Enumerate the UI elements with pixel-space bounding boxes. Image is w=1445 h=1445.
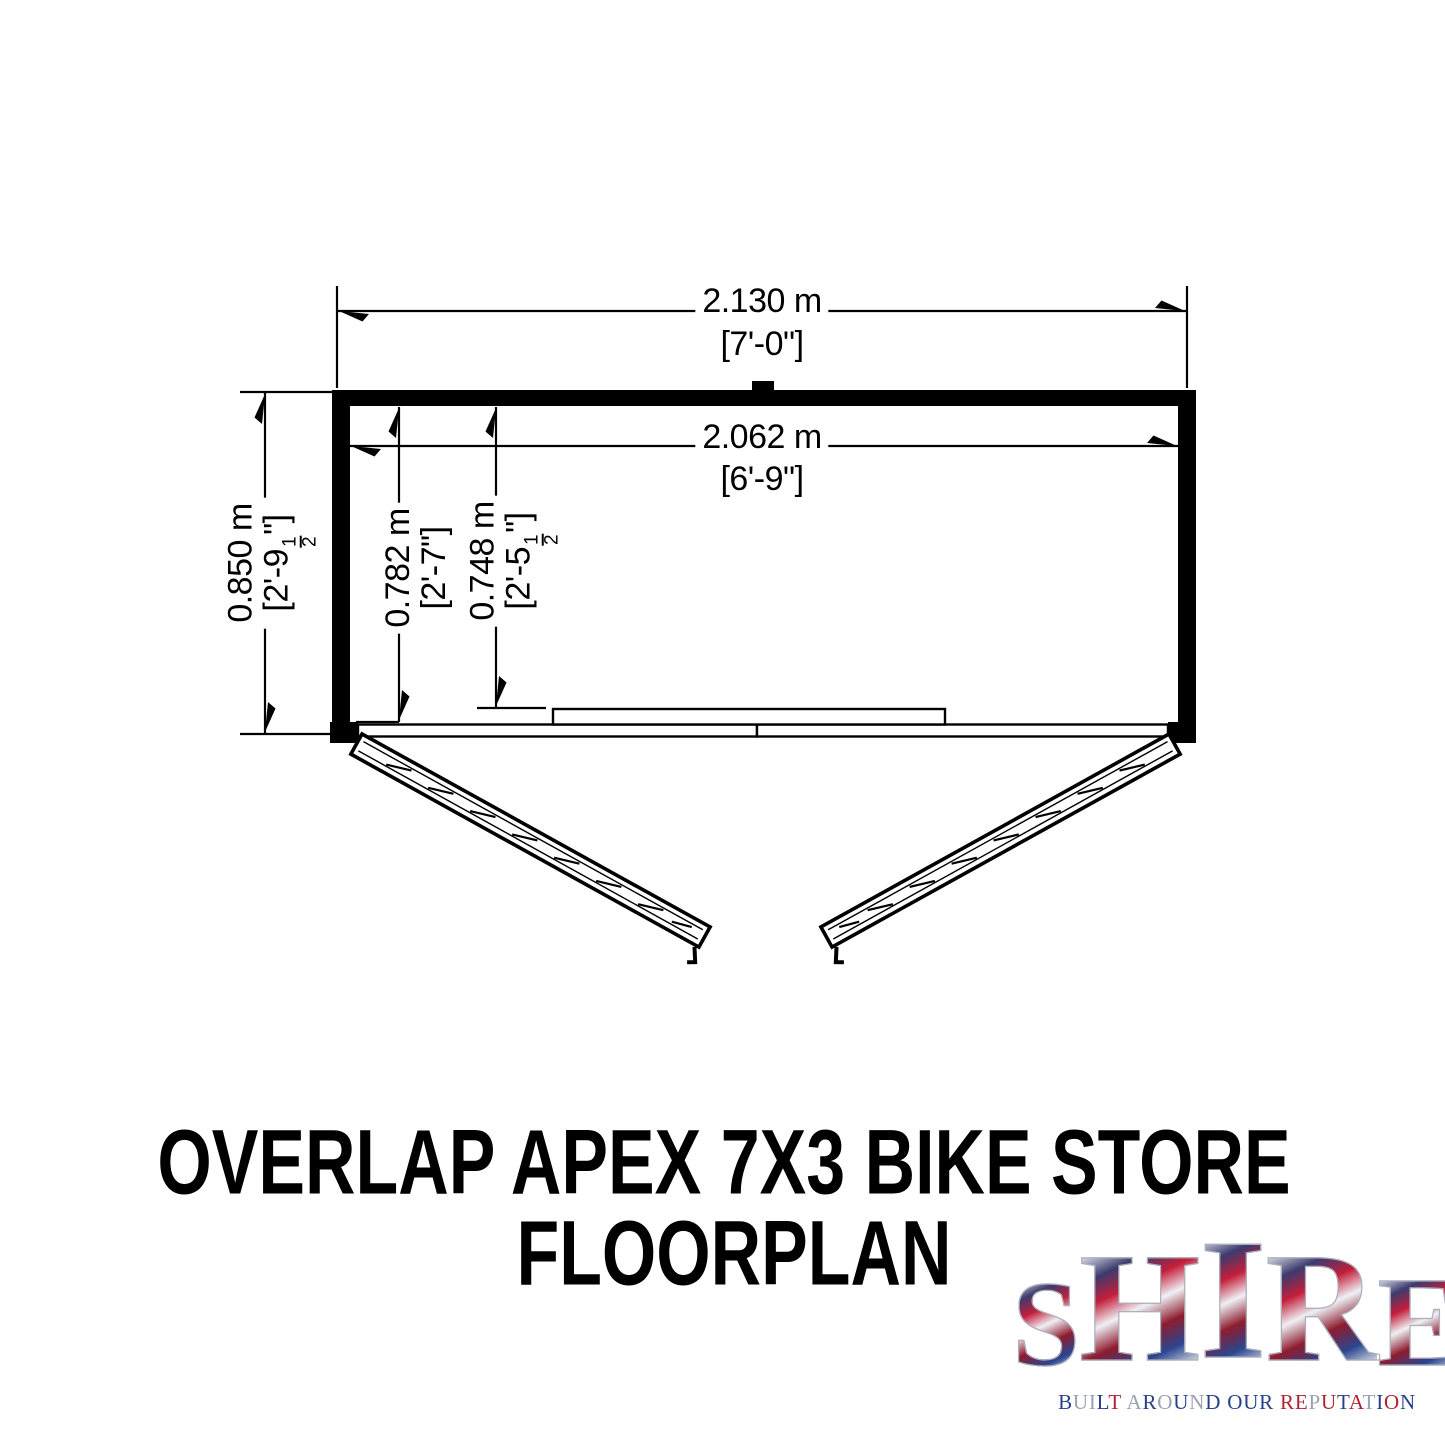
right-wall xyxy=(1178,390,1196,742)
bottom-left-corner-post xyxy=(330,722,358,743)
top-wall xyxy=(332,390,1196,406)
logo-letter-h: H xyxy=(1079,1230,1199,1386)
right-door-open xyxy=(817,734,1189,966)
page-title-line1: OVERLAP APEX 7X3 BIKE STORE xyxy=(0,1111,1445,1216)
dim-overall-depth-label: 0.850 m [2'-912"] xyxy=(221,497,324,628)
dim-internal-depth-label: 0.782 m [2'-7"] xyxy=(378,502,456,633)
dim-internal-width-metric: 2.062 m xyxy=(695,420,828,456)
dim-internal-depth-imperial: [2'-7"] xyxy=(418,526,453,609)
dim-overall-depth-metric: 0.850 m xyxy=(224,503,259,622)
dim-overall-width-imperial: [7'-0"] xyxy=(713,327,810,363)
floorplan-page: 2.130 m [7'-0"] 2.062 m [6'-9"] 0.850 m … xyxy=(0,0,1445,1445)
left-door-sill xyxy=(358,725,757,737)
left-door-open xyxy=(342,734,714,966)
shire-logo: S H I R E BUILT AROUND OUR REPUTATION xyxy=(1048,1234,1426,1413)
logo-letter-s: S xyxy=(1012,1264,1079,1386)
dim-internal-depth-metric: 0.782 m xyxy=(381,508,416,627)
dim-door-depth-imperial: [2'-512"] xyxy=(502,512,562,609)
threshold xyxy=(358,709,1168,737)
right-door-sill xyxy=(757,725,1168,737)
logo-letter-e: E xyxy=(1377,1258,1445,1386)
dim-overall-depth-imperial: [2'-912"] xyxy=(260,514,320,611)
logo-letter-r: R xyxy=(1266,1230,1378,1386)
dim-internal-width-imperial: [6'-9"] xyxy=(713,462,810,498)
shire-logo-letters: S H I R E xyxy=(1048,1234,1426,1386)
left-wall xyxy=(332,390,350,742)
dim-overall-width-metric: 2.130 m xyxy=(695,284,828,320)
dim-door-depth-metric: 0.748 m xyxy=(466,501,501,620)
apex-roof-marker xyxy=(752,381,774,391)
logo-letter-i: I xyxy=(1200,1214,1266,1386)
logo-tagline: BUILT AROUND OUR REPUTATION xyxy=(1048,1392,1426,1413)
dim-door-depth-label: 0.748 m [2'-512"] xyxy=(463,495,566,626)
floor-step xyxy=(553,709,945,725)
page-title-line2: FLOORPLAN xyxy=(448,1202,1020,1307)
